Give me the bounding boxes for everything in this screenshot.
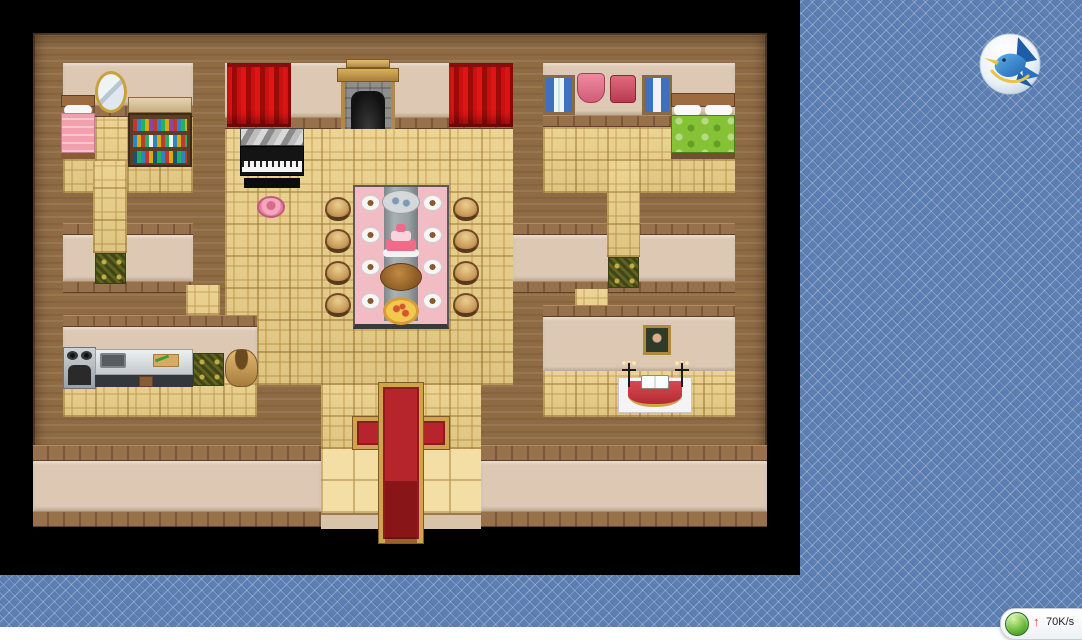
stove (63, 347, 96, 389)
curtained-window (642, 75, 672, 115)
bed-foot (61, 153, 95, 159)
brick-trim (543, 305, 735, 317)
exterior-brick (481, 445, 767, 461)
stool (453, 293, 479, 317)
place-setting (361, 293, 380, 309)
stool (325, 261, 351, 285)
ornate-green-tile (95, 253, 126, 284)
exterior-brick (481, 511, 767, 527)
green-double-bed (671, 93, 735, 159)
stove-oven (68, 365, 91, 385)
fish-platter (382, 190, 420, 214)
red-carpet-shadow (385, 481, 417, 543)
ornate-green-tile (193, 353, 224, 386)
place-setting (423, 195, 442, 211)
wall-panel-study (543, 317, 735, 371)
open-book (641, 375, 669, 389)
stool (325, 293, 351, 317)
stage-curtain-right (449, 63, 513, 127)
kitchen-counter (95, 349, 193, 389)
piano-lid (240, 128, 304, 146)
red-carpet-center (385, 423, 417, 445)
stool (453, 197, 479, 221)
place-setting (361, 259, 380, 275)
desktop-wallpaper: ↑ 70K/s (0, 0, 1082, 627)
fireplace-opening (351, 91, 385, 129)
pink-dress-display (577, 73, 605, 103)
wooden-counter (128, 97, 192, 113)
bed-pillow (705, 105, 732, 115)
stage-curtain-left (227, 63, 291, 127)
ornate-green-tile (608, 257, 639, 288)
path-west (93, 161, 127, 253)
book-row (133, 151, 187, 163)
stove-burner (81, 351, 92, 360)
framed-portrait (643, 325, 671, 355)
net-speed-value: 70K/s (1046, 616, 1074, 628)
bed-blanket-green (671, 115, 735, 153)
grand-piano (240, 128, 304, 188)
corridor-west-panel (63, 235, 193, 281)
candelabra (675, 361, 689, 387)
curtained-window (543, 75, 575, 115)
bed-blanket (61, 113, 95, 153)
stove-burner (67, 351, 78, 360)
place-setting (423, 227, 442, 243)
hummingbird-icon (978, 31, 1043, 96)
cake-layer (391, 231, 411, 241)
book-row (133, 135, 187, 147)
pink-round-cushion (257, 196, 285, 218)
place-setting (361, 195, 380, 211)
kitchen-stool (139, 376, 153, 387)
exterior-wall-east (481, 461, 767, 511)
bed-foot (671, 153, 735, 159)
brick-trim (63, 315, 257, 327)
tiered-cake (383, 223, 419, 257)
net-speed-widget[interactable]: ↑ 70K/s (1000, 608, 1082, 640)
fireplace (337, 59, 399, 129)
exterior-brick (33, 445, 321, 461)
mantel-top (346, 59, 390, 68)
brick-trim (63, 281, 193, 293)
book-row (133, 119, 187, 131)
banquet-table (353, 185, 449, 329)
bed-pillow (674, 105, 701, 115)
game-window[interactable] (0, 0, 800, 575)
place-setting (423, 293, 442, 309)
cake-top (396, 224, 406, 232)
game-map (33, 33, 767, 543)
piano-base (244, 178, 300, 188)
stool (453, 229, 479, 253)
place-setting (361, 227, 380, 243)
path-east (607, 161, 640, 257)
oval-mirror (95, 71, 127, 113)
security-orb-icon[interactable] (1005, 612, 1029, 636)
mantel-shelf (337, 68, 399, 82)
pink-bed (61, 95, 95, 159)
grain-sack (225, 349, 258, 387)
hummingbird-app-icon[interactable] (978, 31, 1043, 96)
exterior-brick (33, 511, 321, 527)
candelabra (622, 361, 636, 387)
red-tunic-display (610, 75, 636, 103)
bookshelf (128, 113, 192, 167)
pizza (383, 297, 419, 325)
piano-keys (242, 161, 302, 172)
stool (325, 197, 351, 221)
place-setting (423, 259, 442, 275)
sink (100, 353, 126, 368)
brick-trim (63, 223, 193, 235)
stool (453, 261, 479, 285)
stool (325, 229, 351, 253)
roast-turkey (380, 263, 422, 291)
exterior-wall-west (33, 461, 321, 511)
